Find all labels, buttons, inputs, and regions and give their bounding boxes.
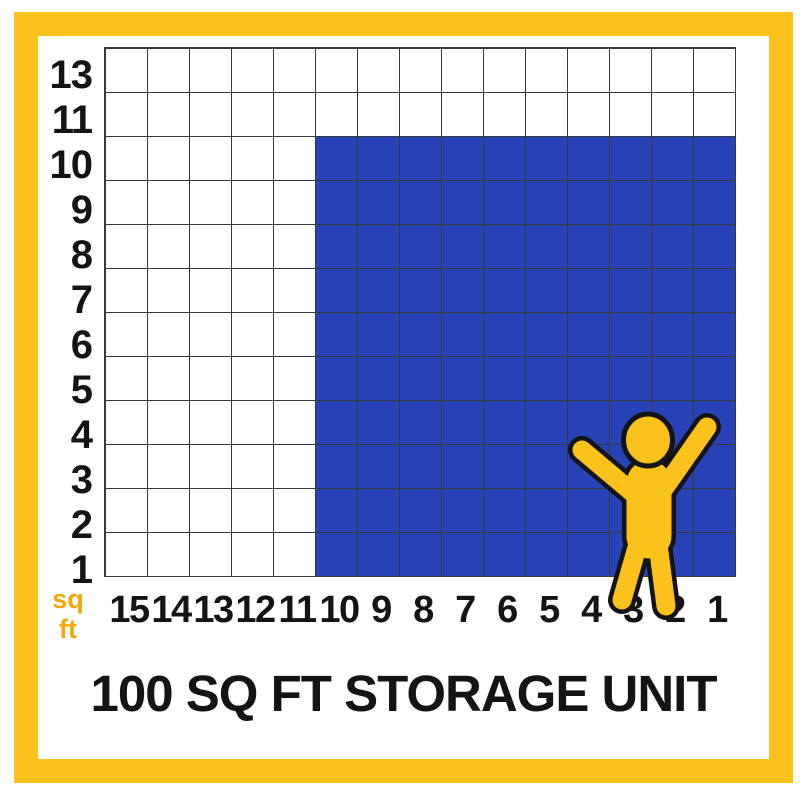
x-axis-label: 1 [696, 588, 738, 632]
y-axis-label: 5 [28, 368, 92, 413]
x-axis-labels: 151413121110987654321 [105, 588, 735, 632]
x-axis-label: 7 [444, 588, 486, 632]
y-axis-label: 6 [28, 323, 92, 368]
y-axis-label: 3 [28, 458, 92, 503]
y-axis-labels: 131110987654321 [28, 48, 92, 576]
x-axis-label: 2 [654, 588, 696, 632]
y-axis-label: 4 [28, 413, 92, 458]
y-axis-label: 8 [28, 233, 92, 278]
x-axis-label: 3 [612, 588, 654, 632]
title: 100 SQ FT STORAGE UNIT [38, 664, 769, 723]
x-axis-label: 6 [486, 588, 528, 632]
y-axis-label: 13 [28, 53, 92, 98]
axis-unit-sq: sq [44, 584, 92, 614]
x-axis-label: 13 [192, 588, 234, 632]
x-axis-label: 10 [318, 588, 360, 632]
x-axis-label: 11 [276, 588, 318, 632]
square-grid [104, 47, 736, 577]
x-axis-label: 4 [570, 588, 612, 632]
y-axis-label: 7 [28, 278, 92, 323]
storage-unit-infographic: 131110987654321 151413121110987654321 sq… [0, 0, 800, 800]
x-axis-label: 14 [150, 588, 192, 632]
axis-unit-label: sq ft [44, 584, 92, 644]
x-axis-label: 8 [402, 588, 444, 632]
x-axis-label: 9 [360, 588, 402, 632]
gridlines [105, 48, 735, 576]
x-axis-label: 15 [108, 588, 150, 632]
y-axis-label: 2 [28, 503, 92, 548]
x-axis-label: 12 [234, 588, 276, 632]
y-axis-label: 10 [28, 143, 92, 188]
axis-unit-ft: ft [44, 614, 92, 644]
y-axis-label: 11 [28, 98, 92, 143]
x-axis-label: 5 [528, 588, 570, 632]
y-axis-label: 9 [28, 188, 92, 233]
